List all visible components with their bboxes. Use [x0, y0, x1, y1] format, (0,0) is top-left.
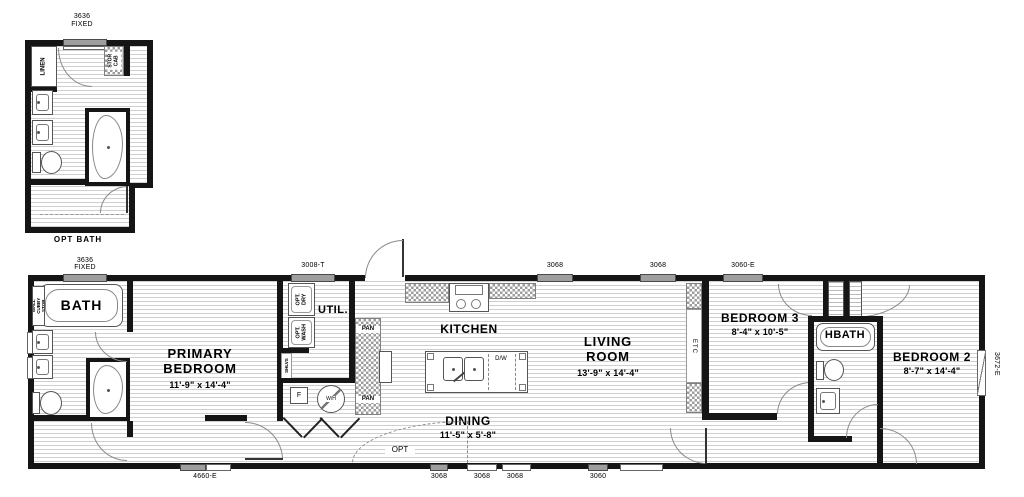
inset-lower-door-leaf — [126, 186, 128, 213]
living-room-label: LIVING ROOM 13'-9" x 14'-4" — [551, 335, 665, 378]
opt-dry-label: OPT. DRY — [295, 289, 308, 311]
hall-door-leaf — [705, 428, 707, 464]
optional-washer: OPT. WASH — [288, 317, 315, 348]
hbath-sink — [816, 388, 840, 414]
closet-shelf-1 — [828, 281, 844, 318]
bedroom2-name: BEDROOM 2 — [883, 351, 981, 364]
primary-line1: PRIMARY — [138, 347, 262, 362]
bath-tub: BATH — [40, 284, 123, 327]
window-3060e — [723, 274, 763, 282]
window-3068-top1 — [537, 274, 573, 282]
water-heater-label: W/H — [325, 396, 337, 402]
inset-window-label: 3636 FIXED — [50, 13, 114, 29]
window-3068-bottom1-label: 3068 — [424, 473, 454, 481]
hbath-toilet-bowl — [824, 359, 844, 381]
island-sink-basin-2 — [464, 357, 484, 381]
inset-right-wall — [147, 40, 153, 188]
living-line2: ROOM — [551, 350, 665, 365]
primary-bedroom-door-leaf — [245, 458, 283, 460]
bedroom2-dims: 8'-7" x 14'-4" — [883, 366, 981, 376]
bedroom3-dims: 8'-4" x 10'-5" — [708, 327, 812, 337]
bath-shower — [86, 358, 130, 421]
living-line1: LIVING — [551, 335, 665, 350]
bedroom2-label: BEDROOM 2 8'-7" x 14'-4" — [883, 351, 981, 377]
etc-label: ETC — [691, 339, 697, 354]
furnace: F — [290, 387, 308, 404]
inset-exterior-patch — [135, 188, 153, 227]
living-dims: 13'-9" x 14'-4" — [551, 368, 665, 378]
kitchen-range — [449, 283, 489, 312]
bath-toilet-tank — [32, 392, 40, 414]
etc-cabinet-top — [686, 283, 702, 309]
etc-cabinet-bottom — [686, 383, 702, 413]
opt-wash-label: OPT. WASH — [295, 322, 308, 344]
hbath-toilet-tank — [816, 361, 824, 380]
stor-cab-label: STOR CAB — [107, 52, 121, 70]
water-heater: W/H — [317, 385, 345, 413]
linen-label: LINEN — [41, 57, 48, 75]
door-3672e-label: 3672-E — [993, 352, 1000, 398]
inset-window-size: 3636 — [50, 13, 114, 21]
bath-toilet-bowl — [40, 391, 62, 415]
linen-closet: LINEN — [31, 46, 57, 87]
window-3068-bottom3-label: 3068 — [500, 473, 530, 481]
window-3068-bottom3 — [502, 464, 531, 471]
opt-door-leaf — [467, 421, 468, 463]
window-3008t — [291, 274, 335, 282]
util-south-wall — [277, 378, 355, 383]
bath-stub-wall — [127, 421, 133, 437]
inset-toilet-tank — [32, 152, 41, 173]
entertainment-center: ETC — [686, 309, 702, 383]
main-fixed-window-type: FIXED — [55, 264, 115, 272]
window-3068-bottom1 — [430, 464, 448, 471]
door-4660e — [180, 464, 206, 471]
closet-west-wall — [823, 281, 828, 318]
primary-line2: BEDROOM — [138, 362, 262, 377]
window-3636-fixed — [63, 274, 107, 282]
inset-caption: OPT BATH — [43, 236, 113, 245]
window-3068-bottom2 — [467, 464, 497, 471]
shelves-label: SHLVS — [284, 359, 289, 374]
bedroom3-label: BEDROOM 3 8'-4" x 10'-5" — [708, 312, 812, 338]
kitchen-counter-left — [405, 283, 449, 303]
primary-bedroom-label: PRIMARY BEDROOM 11'-9" x 14'-4" — [138, 347, 262, 390]
wall-cubby-storage: WALL CUBBY STOR — [32, 286, 45, 326]
opt-label: OPT — [385, 446, 415, 455]
inset-bottom-wall — [25, 227, 135, 233]
window-3068-top2 — [640, 274, 676, 282]
entry-door-arc — [365, 240, 403, 278]
floor-plan: 3636 FIXED LINEN STOR CAB OPT BATH 3636 … — [0, 0, 1024, 497]
bedroom3-south-wall — [702, 413, 777, 420]
inset-shower — [85, 108, 130, 186]
window-3068-bottom2-label: 3068 — [467, 473, 497, 481]
inset-fixed-window — [63, 39, 107, 46]
door-4660e-sidelite — [206, 464, 231, 471]
inset-sink-1 — [32, 90, 53, 115]
living-bed3-wall — [702, 281, 709, 420]
window-3068-top1-label: 3068 — [530, 262, 580, 270]
inset-bath-south-wall — [25, 179, 85, 185]
hbath-north-wall — [808, 316, 883, 322]
bedroom3-name: BEDROOM 3 — [708, 312, 812, 325]
door-3060 — [588, 464, 608, 471]
door-3060-label: 3060 — [580, 473, 616, 481]
wall-cubby-label: WALL CUBBY STOR — [32, 298, 45, 314]
inset-toilet-bowl — [41, 151, 62, 174]
window-bottom-right — [620, 464, 663, 471]
window-3008t-label: 3008-T — [288, 262, 338, 270]
bath-sink-1 — [32, 330, 53, 354]
window-3068-top2-label: 3068 — [633, 262, 683, 270]
kitchen-label: KITCHEN — [432, 323, 506, 336]
inset-window-type: FIXED — [50, 21, 114, 29]
dishwasher-label: D/W — [487, 356, 515, 363]
bath-east-wall — [127, 275, 133, 332]
main-window-3636-type: FIXED — [55, 264, 115, 272]
window-3060e-label: 3060-E — [718, 262, 768, 270]
pantry-label-top: PAN — [356, 326, 380, 333]
inset-sink-2 — [32, 120, 53, 145]
bath-sink-2 — [32, 355, 53, 379]
bath-label: BATH — [61, 298, 103, 314]
primary-dims: 11'-9" x 14'-4" — [138, 380, 262, 390]
bath-south-wall — [28, 415, 86, 421]
storcab-east-wall — [124, 40, 130, 76]
storage-cabinet: STOR CAB — [104, 46, 124, 76]
door-4660e-label: 4660-E — [178, 473, 232, 481]
inset-dashed-line — [40, 214, 124, 215]
bedroom-hall-wall — [205, 415, 247, 421]
pantry-label-bottom: PAN — [356, 396, 380, 403]
hbath-label: HBATH — [810, 329, 880, 341]
util-shelves: SHLVS — [281, 353, 292, 379]
kitchen-counter-right — [489, 283, 536, 299]
pantry-counter — [379, 351, 392, 383]
furnace-label: F — [297, 392, 301, 400]
